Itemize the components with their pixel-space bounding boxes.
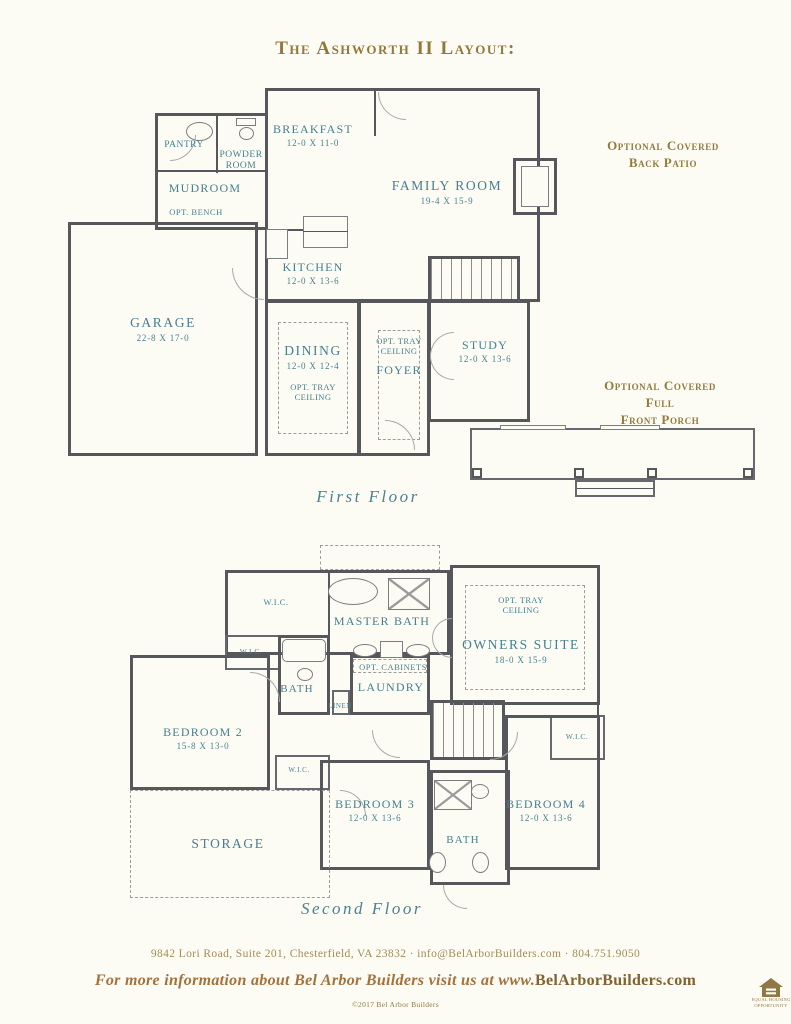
- bath-lower-sink: [429, 852, 446, 873]
- room-label-breakfast: BREAKFAST 12-0 X 11-0: [273, 122, 353, 149]
- room-label-dining: DINING 12-0 X 12-4 OPT. TRAY CEILING: [278, 343, 348, 402]
- footer-cta-domain: BelArborBuilders.com: [535, 972, 696, 989]
- wall-owners-connector: [597, 703, 599, 717]
- porch-column: [647, 468, 657, 478]
- room-label-opt-cabinets: OPT. CABINETS: [359, 662, 427, 672]
- kitchen-range: [266, 229, 288, 259]
- page-title: The Ashworth II Layout:: [0, 38, 791, 60]
- door-swing: [250, 672, 280, 702]
- room-label-owners: OWNERS SUITE 18-0 X 15-9: [462, 637, 580, 666]
- room-label-bedroom3: BEDROOM 3 12-0 X 13-6: [335, 797, 415, 824]
- kitchen-island-line: [303, 231, 348, 232]
- kitchen-island: [303, 216, 348, 248]
- bath-upper-toilet: [297, 668, 313, 681]
- porch-column: [574, 468, 584, 478]
- footer-cta: For more information about Bel Arbor Bui…: [0, 972, 791, 990]
- powder-toilet: [239, 127, 254, 140]
- wall-bedroom2: [130, 655, 270, 790]
- room-label-wic-small: W.I.C.: [288, 766, 309, 774]
- room-label-bath-upper: BATH: [280, 683, 314, 696]
- footer-copyright: ©2017 Bel Arbor Builders: [0, 1000, 791, 1009]
- bath-lower-sink: [472, 852, 489, 873]
- wall-breakfast-stub: [374, 88, 376, 136]
- room-label-owners-note: OPT. TRAY CEILING: [486, 593, 556, 615]
- room-label-wic-left: W.I.C.: [240, 647, 263, 656]
- fireplace-firebox: [521, 166, 549, 207]
- room-label-laundry: LAUNDRY: [358, 680, 424, 694]
- room-label-wic-top: W.I.C.: [263, 597, 288, 607]
- footer-address: 9842 Lori Road, Suite 201, Chesterfield,…: [0, 948, 791, 960]
- caption-second-floor: Second Floor: [301, 899, 423, 919]
- master-vanity-cabinet: [380, 641, 403, 658]
- room-label-bedroom2: BEDROOM 2 15-8 X 13-0: [163, 725, 243, 752]
- equal-housing-logo: EQUAL HOUSING OPPORTUNITY: [750, 978, 791, 1009]
- door-swing: [372, 730, 400, 758]
- flyer-page: The Ashworth II Layout: PANTRY POWDER RO…: [0, 0, 791, 1024]
- door-swing-owners: [432, 638, 452, 658]
- master-sink: [406, 644, 430, 657]
- bath-upper-tub: [282, 639, 326, 662]
- bath-lower-toilet: [471, 784, 489, 799]
- stairs-first-floor: [428, 256, 520, 302]
- room-label-foyer: FOYER: [376, 363, 421, 377]
- room-label-opt-bench: OPT. BENCH: [169, 207, 223, 217]
- room-label-powder: POWDER ROOM: [215, 150, 267, 173]
- bath-lower-shower: [434, 780, 472, 810]
- footer-cta-italic: For more information about Bel Arbor Bui…: [95, 972, 535, 989]
- room-label-bath-lower: BATH: [446, 834, 480, 847]
- powder-toilet-tank: [236, 118, 256, 126]
- equal-housing-text2: OPPORTUNITY: [750, 1003, 791, 1009]
- room-label-master-bath: MASTER BATH: [334, 614, 430, 628]
- room-label-mudroom: MUDROOM: [169, 181, 241, 195]
- room-label-kitchen: KITCHEN 12-0 X 13-6: [282, 260, 343, 287]
- master-sink: [353, 644, 377, 657]
- door-swing: [443, 885, 467, 909]
- porch-window: [500, 425, 566, 430]
- room-label-linen: LINEN: [328, 702, 352, 710]
- room-label-wic-right: W.I.C.: [566, 732, 589, 741]
- caption-first-floor: First Floor: [316, 487, 420, 507]
- room-label-study: STUDY 12-0 X 13-6: [459, 338, 512, 365]
- master-tub: [328, 578, 378, 605]
- front-porch-outline: [470, 428, 755, 480]
- porch-steps-line: [577, 488, 653, 489]
- room-label-bedroom4: BEDROOM 4 12-0 X 13-6: [506, 797, 586, 824]
- annotation-back-patio: Optional Covered Back Patio: [607, 138, 719, 172]
- porch-column: [743, 468, 753, 478]
- room-label-pantry: PANTRY: [164, 140, 204, 151]
- equal-housing-text: EQUAL HOUSING: [750, 997, 791, 1003]
- room-label-storage: STORAGE: [191, 836, 264, 852]
- master-shower: [388, 578, 430, 610]
- porch-column: [472, 468, 482, 478]
- room-label-garage: GARAGE 22-8 X 17-0: [130, 315, 196, 344]
- room-label-foyer-note: OPT. TRAY CEILING: [375, 334, 423, 356]
- equal-housing-house-icon: [759, 978, 783, 997]
- annotation-front-porch: Optional Covered Full Front Porch: [595, 378, 726, 429]
- room-label-family: FAMILY ROOM 19-4 X 15-9: [392, 178, 502, 207]
- f2-roof-outline: [320, 545, 440, 570]
